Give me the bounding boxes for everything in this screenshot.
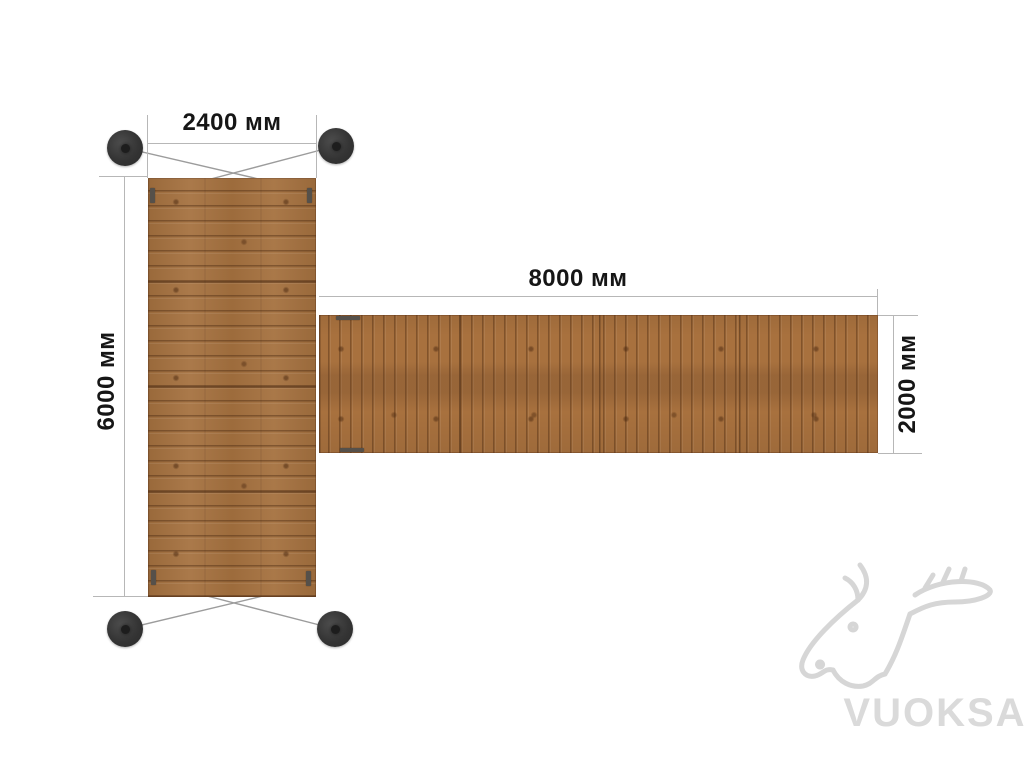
moose-antler-right bbox=[910, 582, 990, 614]
dimension-label-walkway-length: 8000 мм bbox=[478, 266, 678, 292]
extension-line bbox=[93, 596, 148, 597]
dimension-label-pontoon-width: 2400 мм bbox=[132, 110, 332, 136]
brand-name: VUOKSA bbox=[843, 691, 1024, 735]
extension-line bbox=[99, 176, 148, 177]
dimension-line-walkway-length bbox=[319, 296, 878, 297]
corner-bracket bbox=[306, 571, 311, 586]
corner-bracket bbox=[150, 188, 155, 203]
moose-neck bbox=[885, 614, 910, 674]
moose-jaw bbox=[833, 670, 885, 686]
mooring-anchor-bottom-right bbox=[317, 611, 353, 647]
deck-bracket bbox=[336, 316, 360, 320]
moose-logo-icon bbox=[802, 565, 991, 686]
deck-bracket bbox=[340, 448, 364, 452]
dimension-line-width-top bbox=[147, 143, 317, 144]
dimension-label-pontoon-length: 6000 мм bbox=[94, 281, 120, 481]
moose-head-outline bbox=[802, 600, 858, 676]
walkway-deck bbox=[319, 315, 878, 453]
dimension-label-walkway-width: 2000 мм bbox=[895, 284, 921, 484]
pontoon-platform bbox=[148, 178, 316, 597]
anchor-pin-icon bbox=[121, 144, 130, 153]
anchor-pin-icon bbox=[331, 625, 340, 634]
corner-bracket bbox=[151, 570, 156, 585]
mooring-anchor-bottom-left bbox=[107, 611, 143, 647]
moose-antler-left-tine bbox=[845, 578, 858, 600]
pontoon-layout-diagram: 2400 мм 6000 мм 8000 мм 2000 мм VUOKSA bbox=[0, 0, 1024, 768]
corner-bracket bbox=[307, 188, 312, 203]
dimension-line-length-left bbox=[124, 176, 125, 597]
mooring-line bbox=[125, 596, 263, 629]
anchor-pin-icon bbox=[121, 625, 130, 634]
mooring-line bbox=[207, 596, 335, 629]
extension-line bbox=[877, 289, 878, 315]
anchor-pin-icon bbox=[332, 142, 341, 151]
brand-watermark: VUOKSA bbox=[775, 550, 1024, 750]
moose-nostril bbox=[818, 662, 823, 667]
moose-eye bbox=[850, 624, 856, 630]
